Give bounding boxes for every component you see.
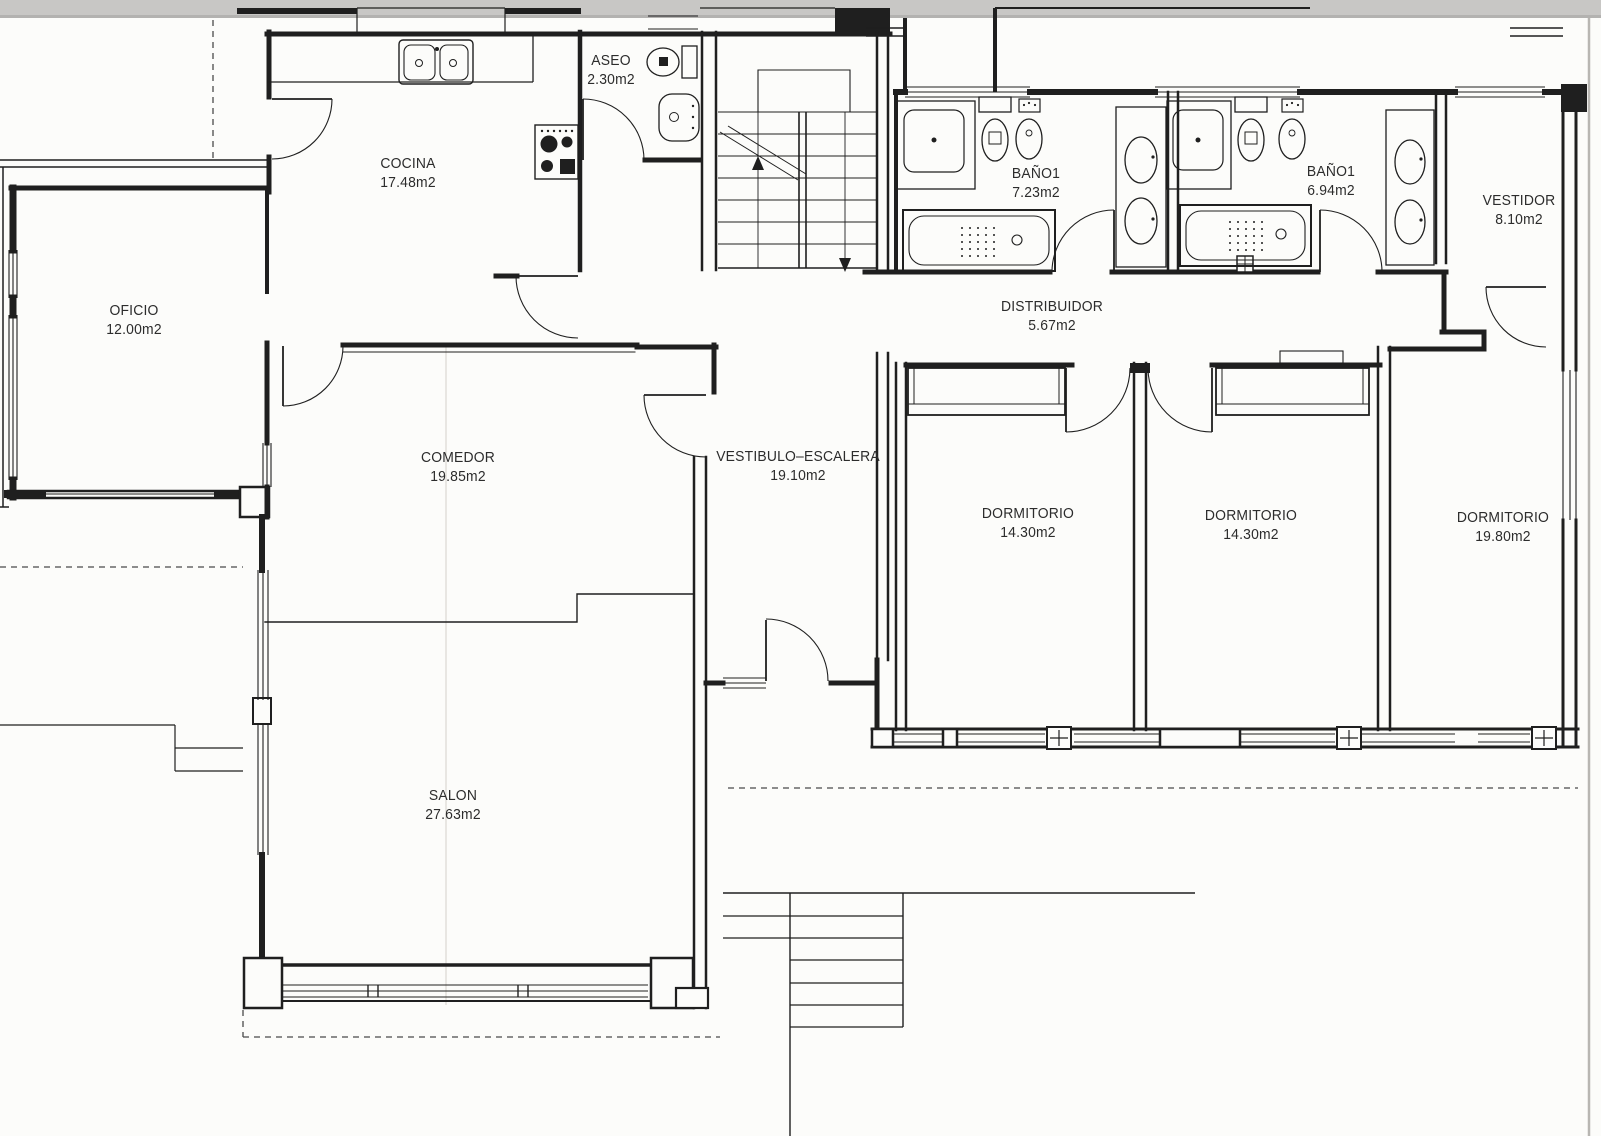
- exterior-stairs: [0, 725, 1195, 1136]
- parapet-lines: [0, 8, 1587, 507]
- room-area: 2.30m2: [587, 71, 635, 90]
- stove-icon: [535, 125, 578, 179]
- room-area: 8.10m2: [1483, 211, 1556, 230]
- door-bano1-izq: [1052, 210, 1114, 272]
- room-name: DORMITORIO: [982, 505, 1074, 524]
- vanity-sink-icon: [897, 101, 975, 189]
- room-area: 7.23m2: [1012, 184, 1060, 203]
- room-label-cocina: COCINA 17.48m2: [380, 155, 436, 193]
- room-name: SALON: [425, 787, 481, 806]
- room-area: 5.67m2: [1001, 317, 1103, 336]
- room-label-comedor: COMEDOR 19.85m2: [421, 449, 495, 487]
- room-label-vestibulo-escalera: VESTIBULO–ESCALERA 19.10m2: [716, 448, 880, 486]
- toilet-icon: [647, 46, 697, 78]
- room-area: 14.30m2: [1205, 526, 1297, 545]
- kitchen-sink-icon: [399, 40, 473, 84]
- room-label-oficio: OFICIO 12.00m2: [106, 302, 162, 340]
- room-label-distribuidor: DISTRIBUIDOR 5.67m2: [1001, 298, 1103, 336]
- door-vestibulo-exterior: [766, 619, 828, 681]
- room-label-vestidor: VESTIDOR 8.10m2: [1483, 192, 1556, 230]
- room-name: DORMITORIO: [1205, 507, 1297, 526]
- room-label-dormitorio-2: DORMITORIO 14.30m2: [1205, 507, 1297, 545]
- closet-dormitorio2: [1216, 368, 1369, 415]
- twin-basin-icon: [1116, 107, 1166, 267]
- room-name: BAÑO1: [1307, 163, 1355, 182]
- room-area: 19.85m2: [421, 468, 495, 487]
- door-cocina-comedor: [516, 276, 578, 338]
- door-bano1-der: [1320, 210, 1382, 272]
- windows: [9, 87, 1576, 997]
- room-label-dormitorio-3: DORMITORIO 19.80m2: [1457, 509, 1549, 547]
- room-name: COCINA: [380, 155, 436, 174]
- room-name: OFICIO: [106, 302, 162, 321]
- room-label-bano1-izq: BAÑO1 7.23m2: [1012, 165, 1060, 203]
- closets: [908, 368, 1369, 415]
- vanity-sink-icon: [1167, 101, 1231, 189]
- floor-plan: COCINA 17.48m2 ASEO 2.30m2 OFICIO 12.00m…: [0, 0, 1601, 1136]
- toilet-icon: [1235, 97, 1267, 161]
- room-label-aseo: ASEO 2.30m2: [587, 52, 635, 90]
- door-aseo: [583, 99, 644, 160]
- room-label-bano1-der: BAÑO1 6.94m2: [1307, 163, 1355, 201]
- room-label-dormitorio-1: DORMITORIO 14.30m2: [982, 505, 1074, 543]
- room-name: DORMITORIO: [1457, 509, 1549, 528]
- stair-down-arrow-icon: [839, 258, 851, 272]
- room-name: DISTRIBUIDOR: [1001, 298, 1103, 317]
- door-dormitorio2: [1148, 368, 1212, 432]
- room-label-salon: SALON 27.63m2: [425, 787, 481, 825]
- twin-basin-icon: [1386, 110, 1434, 265]
- room-area: 14.30m2: [982, 524, 1074, 543]
- aseo-fixtures: [647, 46, 699, 141]
- door-vestidor-dormitorio3: [1486, 287, 1546, 347]
- washbasin-icon: [659, 94, 699, 141]
- toilet-icon: [979, 97, 1011, 161]
- room-name: BAÑO1: [1012, 165, 1060, 184]
- floor-plan-drawing: [0, 0, 1601, 1136]
- room-area: 17.48m2: [380, 174, 436, 193]
- door-cocina-terraza: [272, 99, 332, 159]
- bathtub-icon: [903, 210, 1055, 271]
- room-name: VESTIBULO–ESCALERA: [716, 448, 880, 467]
- door-comedor-vestibulo: [644, 395, 706, 457]
- room-name: VESTIDOR: [1483, 192, 1556, 211]
- room-name: COMEDOR: [421, 449, 495, 468]
- room-area: 19.80m2: [1457, 528, 1549, 547]
- closet-dormitorio1: [908, 368, 1065, 415]
- bidet-icon: [1016, 99, 1042, 159]
- bathroom2-fixtures: [1167, 97, 1434, 266]
- staircase: [718, 70, 877, 272]
- room-name: ASEO: [587, 52, 635, 71]
- room-area: 12.00m2: [106, 321, 162, 340]
- door-comedor-nw: [283, 346, 343, 406]
- door-dormitorio1: [1066, 368, 1130, 432]
- room-area: 6.94m2: [1307, 182, 1355, 201]
- room-area: 19.10m2: [716, 467, 880, 486]
- room-area: 27.63m2: [425, 806, 481, 825]
- bidet-icon: [1279, 99, 1305, 159]
